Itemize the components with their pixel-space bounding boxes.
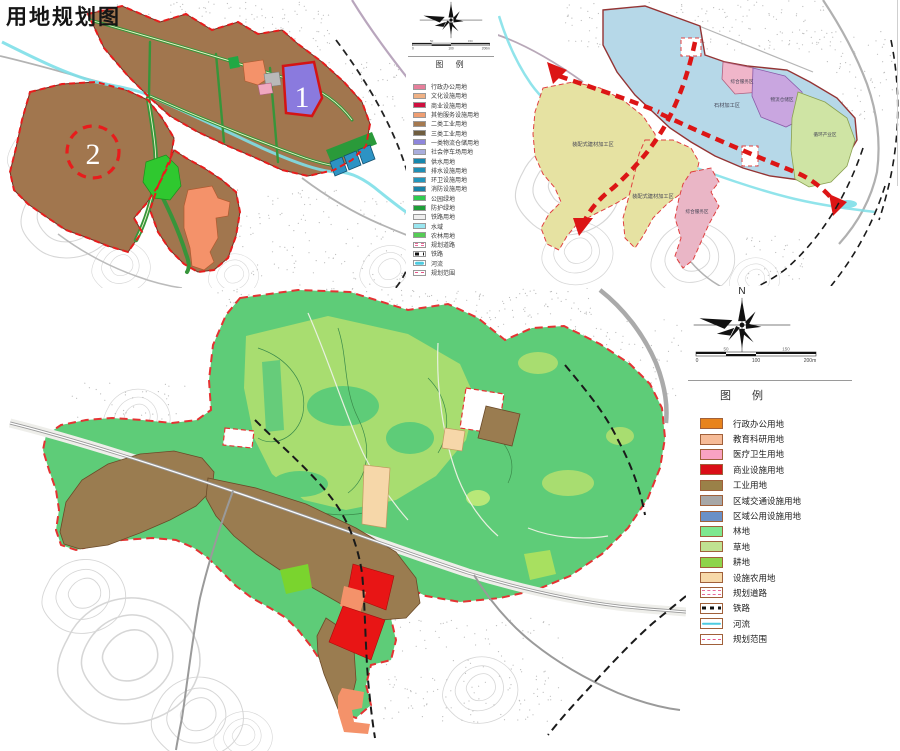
legend-label: 铁路 bbox=[733, 602, 750, 614]
legend-label: 铁路用地 bbox=[431, 212, 455, 221]
legend-swatch-solid bbox=[413, 112, 426, 118]
legend-label: 区域公用设施用地 bbox=[733, 510, 801, 522]
page-title: 用地规划图 bbox=[6, 1, 121, 31]
legend-swatch-solid bbox=[413, 139, 426, 145]
legend-label: 区域交通设施用地 bbox=[733, 495, 801, 507]
legend-item: 草地 bbox=[686, 539, 898, 554]
compass-rose-icon bbox=[415, 0, 487, 40]
legend-swatch-rail bbox=[700, 603, 723, 614]
legend-label: 医疗卫生用地 bbox=[733, 448, 784, 460]
legend-label: 规划范围 bbox=[431, 268, 455, 277]
legend-swatch-solid bbox=[413, 186, 426, 192]
legend-label: 河流 bbox=[733, 618, 750, 630]
legend-label: 公园绿地 bbox=[431, 194, 455, 203]
legend-item: 区域公用设施用地 bbox=[686, 508, 898, 523]
legend-item: 供水用地 bbox=[406, 156, 498, 165]
divider bbox=[408, 56, 494, 57]
legend-swatch-solid bbox=[413, 130, 426, 136]
legend-item: 商业设施用地 bbox=[686, 462, 898, 477]
legend-item: 社会停车场用地 bbox=[406, 147, 498, 156]
svg-text:150: 150 bbox=[468, 39, 473, 43]
legend-label: 规划道路 bbox=[431, 240, 455, 249]
zone-label-prefab-south: 装配式建材加工区 bbox=[632, 192, 674, 200]
legend-swatch-solid bbox=[413, 149, 426, 155]
zone-label-service-top: 综合服务区 bbox=[731, 78, 754, 85]
legend-item: 教育科研用地 bbox=[686, 431, 898, 446]
legend-item: 耕地 bbox=[686, 555, 898, 570]
legend-item: 林地 bbox=[686, 524, 898, 539]
legend-item: 防护绿地 bbox=[406, 203, 498, 212]
legend-item: 文化设施用地 bbox=[406, 91, 498, 100]
legend-item: 医疗卫生用地 bbox=[686, 447, 898, 462]
legend-item: 环卫设施用地 bbox=[406, 175, 498, 184]
legend-swatch-solid bbox=[413, 167, 426, 173]
legend-swatch-solid bbox=[413, 177, 426, 183]
legend-swatch-solid bbox=[413, 214, 426, 220]
legend-item: 区域交通设施用地 bbox=[686, 493, 898, 508]
scale-bar: 0 100 200m 50 150 bbox=[411, 38, 491, 52]
scale-label: 200m bbox=[804, 358, 817, 364]
legend-label: 规划范围 bbox=[733, 633, 767, 645]
legend-swatch-solid bbox=[700, 449, 723, 460]
legend-item: 水域 bbox=[406, 221, 498, 230]
zone-label-logistics: 物流仓储区 bbox=[771, 96, 794, 103]
land-use-planning-sheet: 用地规划图 bbox=[0, 0, 900, 751]
legend-swatch-rail bbox=[413, 251, 426, 257]
legend-label: 林地 bbox=[733, 525, 750, 537]
legend-item: 铁路用地 bbox=[406, 212, 498, 221]
legend-swatch-solid bbox=[700, 495, 723, 506]
legend-label: 防护绿地 bbox=[431, 203, 455, 212]
legend-item: 铁路 bbox=[686, 601, 898, 616]
agri-facility-parcel bbox=[362, 465, 390, 528]
legend-label: 商业设施用地 bbox=[431, 101, 467, 110]
legend-label: 其他服务设施用地 bbox=[431, 110, 479, 119]
legend-item: 工业用地 bbox=[686, 478, 898, 493]
legend-label: 商业设施用地 bbox=[733, 464, 784, 476]
legend-label: 工业用地 bbox=[733, 479, 767, 491]
legend-swatch-solid bbox=[413, 195, 426, 201]
map-industrial-landuse: 1 2 bbox=[0, 0, 410, 290]
svg-text:150: 150 bbox=[782, 347, 790, 352]
scale-label: 0 bbox=[412, 47, 414, 51]
legend-label: 河流 bbox=[431, 259, 443, 268]
legend-items: 行政办公用地文化设施用地商业设施用地其他服务设施用地二类工业用地三类工业用地一类… bbox=[406, 82, 498, 277]
legend-swatch-solid bbox=[700, 434, 723, 445]
legend-item: 公园绿地 bbox=[406, 194, 498, 203]
marker-1-label: 1 bbox=[295, 81, 310, 114]
zone-label-stone: 石材加工区 bbox=[714, 101, 740, 109]
legend-label: 供水用地 bbox=[431, 157, 455, 166]
legend-item: 商业设施用地 bbox=[406, 101, 498, 110]
legend-label: 环卫设施用地 bbox=[431, 175, 467, 184]
legend-swatch-solid bbox=[700, 572, 723, 583]
legend-swatch-solid bbox=[413, 121, 426, 127]
legend-item: 二类工业用地 bbox=[406, 119, 498, 128]
legend-item: 铁路 bbox=[406, 249, 498, 258]
marker-2-label: 2 bbox=[86, 138, 101, 171]
legend-swatch-solid bbox=[413, 84, 426, 90]
legend-item: 规划范围 bbox=[406, 268, 498, 277]
legend-item: 一类物流仓储用地 bbox=[406, 138, 498, 147]
legend-label: 水域 bbox=[431, 222, 443, 231]
legend-swatch-solid bbox=[700, 511, 723, 522]
legend-label: 规划道路 bbox=[733, 587, 767, 599]
map-frame-edge bbox=[897, 0, 898, 186]
legend-swatch-boundary bbox=[700, 634, 723, 645]
legend-item: 行政办公用地 bbox=[406, 82, 498, 91]
legend-item: 设施农用地 bbox=[686, 570, 898, 585]
legend-item: 规划道路 bbox=[406, 240, 498, 249]
legend-swatch-solid bbox=[700, 418, 723, 429]
legend-swatch-road bbox=[700, 587, 723, 598]
svg-text:50: 50 bbox=[430, 39, 434, 43]
legend-label: 草地 bbox=[733, 541, 750, 553]
scale-label: 100 bbox=[448, 47, 454, 51]
legend-swatch-solid bbox=[700, 480, 723, 491]
legend-item: 行政办公用地 bbox=[686, 416, 898, 431]
legend-swatch-solid bbox=[413, 205, 426, 211]
legend-item: 规划范围 bbox=[686, 631, 898, 646]
legend-title: 图 例 bbox=[406, 59, 498, 70]
legend-label: 社会停车场用地 bbox=[431, 147, 473, 156]
legend-items: 行政办公用地教育科研用地医疗卫生用地商业设施用地工业用地区域交通设施用地区域公用… bbox=[686, 416, 898, 647]
zone-label-service-south: 综合服务区 bbox=[686, 208, 709, 215]
legend-label: 一类物流仓储用地 bbox=[431, 138, 479, 147]
legend-top: 0 100 200m 50 150 图 例 行政办公用地文化设施用地商业设施用地… bbox=[406, 0, 498, 290]
legend-swatch-solid bbox=[413, 102, 426, 108]
legend-swatch-solid bbox=[700, 541, 723, 552]
legend-swatch-river bbox=[413, 260, 426, 266]
legend-swatch-solid bbox=[700, 557, 723, 568]
legend-item: 消防设施用地 bbox=[406, 184, 498, 193]
legend-label: 行政办公用地 bbox=[431, 82, 467, 91]
legend-swatch-boundary bbox=[413, 270, 426, 276]
legend-item: 规划道路 bbox=[686, 585, 898, 600]
legend-item: 三类工业用地 bbox=[406, 128, 498, 137]
scale-bar: 0 100 200m 50 150 bbox=[694, 346, 818, 364]
legend-swatch-river bbox=[700, 618, 723, 629]
legend-label: 三类工业用地 bbox=[431, 129, 467, 138]
legend-label: 消防设施用地 bbox=[431, 184, 467, 193]
divider bbox=[688, 380, 852, 381]
legend-label: 铁路 bbox=[431, 249, 443, 258]
legend-item: 排水设施用地 bbox=[406, 166, 498, 175]
legend-title: 图 例 bbox=[686, 387, 806, 403]
legend-item: 农林用地 bbox=[406, 231, 498, 240]
legend-label: 排水设施用地 bbox=[431, 166, 467, 175]
scale-label: 0 bbox=[696, 358, 699, 364]
legend-swatch-solid bbox=[413, 158, 426, 164]
legend-label: 设施农用地 bbox=[733, 572, 776, 584]
legend-item: 其他服务设施用地 bbox=[406, 110, 498, 119]
map-overall-landuse bbox=[8, 288, 690, 751]
legend-item: 河流 bbox=[686, 616, 898, 631]
legend-label: 农林用地 bbox=[431, 231, 455, 240]
legend-label: 教育科研用地 bbox=[733, 433, 784, 445]
legend-swatch-solid bbox=[700, 464, 723, 475]
zone-label-recycle: 循环产业区 bbox=[814, 131, 837, 138]
legend-swatch-solid bbox=[700, 526, 723, 537]
svg-text:50: 50 bbox=[723, 347, 729, 352]
map-functional-zoning: 石材加工区 装配式建材加工区 装配式建材加工区 综合服务区 物流仓储区 循环产业… bbox=[495, 0, 900, 290]
legend-label: 文化设施用地 bbox=[431, 91, 467, 100]
legend-item: 河流 bbox=[406, 259, 498, 268]
legend-swatch-solid bbox=[413, 223, 426, 229]
legend-swatch-road bbox=[413, 242, 426, 248]
legend-swatch-solid bbox=[413, 232, 426, 238]
legend-label: 行政办公用地 bbox=[733, 418, 784, 430]
legend-bottom: N 0 100 200m 50 150 bbox=[686, 286, 898, 751]
legend-label: 二类工业用地 bbox=[431, 119, 467, 128]
legend-swatch-solid bbox=[413, 93, 426, 99]
zone-label-prefab-west: 装配式建材加工区 bbox=[572, 140, 614, 148]
scale-label: 100 bbox=[752, 358, 761, 364]
scale-label: 200m bbox=[482, 47, 490, 51]
legend-label: 耕地 bbox=[733, 556, 750, 568]
